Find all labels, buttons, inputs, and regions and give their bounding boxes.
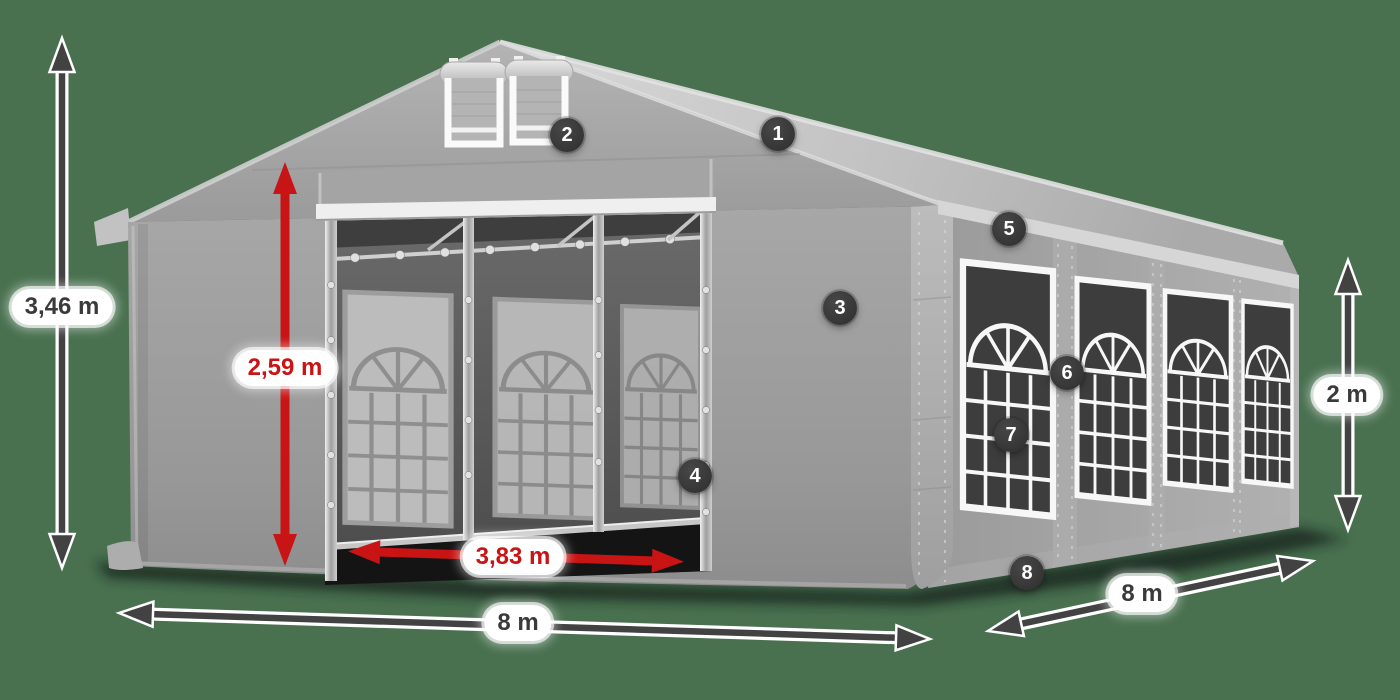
- callout-badge-6: 6: [1050, 356, 1084, 390]
- side-window-1: [963, 262, 1053, 516]
- callout-badge-4: 4: [678, 459, 712, 493]
- callout-badge-1: 1: [761, 117, 795, 151]
- dimension-label-side-length: 8 m: [1108, 576, 1175, 612]
- tent-illustration: [0, 0, 1400, 700]
- callout-badge-8: 8: [1010, 556, 1044, 590]
- dimension-label-front-width: 8 m: [484, 605, 551, 641]
- side-window-3: [1165, 291, 1231, 490]
- entrance-interior: [325, 204, 712, 586]
- dimension-label-wall-height: 2 m: [1313, 377, 1380, 413]
- side-window-2: [1077, 279, 1149, 503]
- callout-badge-7: 7: [994, 418, 1028, 452]
- entrance-frame-pole-right: [700, 205, 712, 571]
- dimension-label-total-height: 3,46 m: [12, 289, 113, 325]
- dimension-label-entrance-width: 3,83 m: [463, 539, 564, 575]
- corner-post: [911, 204, 953, 589]
- gable-vent-left: [440, 58, 508, 144]
- interior-window-2: [495, 299, 597, 519]
- entrance-mid-pole-2: [593, 210, 604, 532]
- side-window-4: [1243, 301, 1292, 486]
- callout-badge-3: 3: [823, 291, 857, 325]
- entrance-mid-pole-1: [463, 216, 474, 540]
- tent-dimensions-diagram: 3,46 m 2,59 m 3,83 m 8 m 8 m 2 m 1 2 3 4…: [0, 0, 1400, 700]
- dimension-label-entrance-height: 2,59 m: [235, 350, 336, 386]
- skirt-flare: [107, 541, 143, 570]
- interior-window-1: [345, 292, 451, 526]
- callout-badge-5: 5: [992, 212, 1026, 246]
- callout-badge-2: 2: [550, 118, 584, 152]
